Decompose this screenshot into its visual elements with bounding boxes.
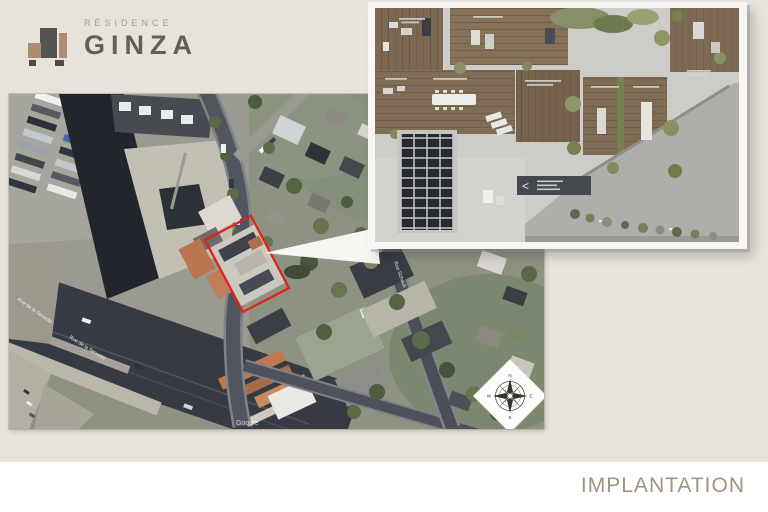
roof-sign: < — [517, 176, 591, 195]
roof-plan: < — [368, 2, 747, 249]
roof-plan-graphic: < — [375, 8, 739, 242]
logo-buildings-icon — [28, 22, 72, 68]
footer: IMPLANTATION — [0, 462, 768, 512]
compass-n: N — [508, 373, 511, 378]
logo-residence: RÉSIDENCE — [84, 18, 198, 28]
page-title: IMPLANTATION — [581, 474, 745, 498]
slide: RÉSIDENCE GINZA — [0, 0, 768, 512]
compass-s: S — [508, 415, 511, 420]
solar-panels — [397, 130, 457, 233]
logo-name: GINZA — [84, 30, 198, 61]
callout-wedge — [254, 214, 386, 272]
map-watermark: Google — [236, 420, 259, 427]
logo-text: RÉSIDENCE GINZA — [84, 14, 198, 61]
compass-e: E — [529, 394, 532, 399]
logo: RÉSIDENCE GINZA — [28, 14, 198, 68]
sign-chevron-icon: < — [522, 179, 529, 193]
